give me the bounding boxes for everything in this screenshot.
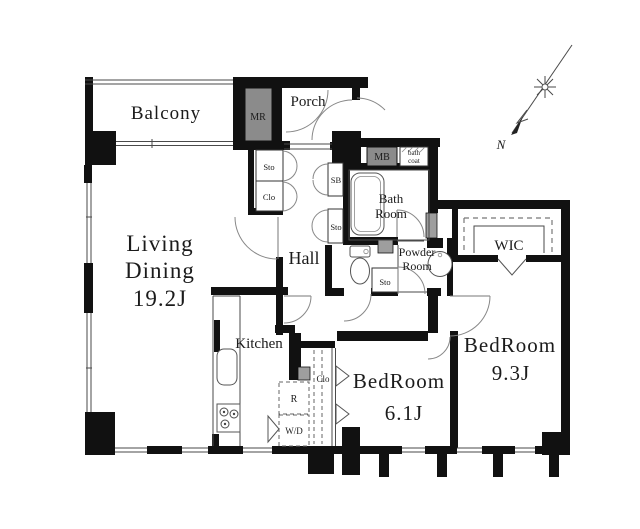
window — [86, 313, 92, 412]
wall-pillar — [493, 454, 503, 477]
wall — [147, 446, 182, 454]
wall — [450, 331, 458, 448]
wall — [233, 141, 290, 150]
entrance-door-arc — [357, 98, 385, 110]
door-arc — [450, 296, 490, 336]
wall-pillar — [379, 454, 389, 477]
balcony-railing — [85, 80, 233, 84]
label-washer-dryer: W/D — [285, 426, 303, 436]
room-label-powder-1: Powder — [399, 245, 436, 259]
kitchen-sink-icon — [217, 349, 237, 385]
toilet-icon — [350, 246, 370, 284]
window — [115, 448, 147, 452]
wall — [233, 77, 368, 88]
room-label-wic: WIC — [494, 238, 523, 254]
wall — [208, 446, 243, 454]
wall-pillar — [437, 454, 447, 477]
wall-pillar — [308, 454, 334, 474]
wall — [430, 200, 570, 209]
floorplan-image: Balcony MR Porch Sto Clo SB Sto MB bath … — [0, 0, 640, 529]
window — [86, 183, 92, 263]
room-label-hall: Hall — [289, 248, 320, 268]
wall — [535, 446, 542, 454]
wall-pillar — [342, 427, 360, 475]
room-size-bedroom-small: 6.1J — [385, 401, 423, 425]
room-label-powder-2: Room — [402, 259, 432, 273]
room-size-living: 19.2J — [133, 286, 187, 311]
compass-north-label: N — [496, 137, 507, 152]
bifold-door-arc — [283, 182, 297, 211]
wall — [561, 200, 570, 455]
wall — [428, 291, 438, 333]
wall — [427, 288, 441, 296]
label-clo-bedroom: Clo — [316, 374, 330, 384]
wall — [325, 288, 344, 296]
wall-pillar — [542, 432, 570, 455]
window — [116, 139, 233, 148]
floorplan-svg: Balcony MR Porch Sto Clo SB Sto MB bath … — [0, 0, 640, 529]
label-meter-box: MB — [374, 152, 390, 163]
folding-door-icon — [268, 416, 279, 442]
wall — [85, 412, 115, 455]
window — [515, 448, 535, 452]
compass-star-center — [542, 84, 548, 90]
label-refrigerator: R — [291, 394, 298, 405]
wall — [272, 446, 342, 454]
wall — [233, 77, 245, 150]
room-label-living-1: Living — [126, 231, 193, 256]
wall — [276, 257, 283, 335]
wall — [245, 287, 288, 295]
door-arc — [284, 296, 311, 323]
label-bath-coat-2: coat — [408, 157, 420, 165]
stove-icon — [217, 404, 240, 432]
room-label-bedroom-small: BedRoom — [353, 369, 445, 393]
door-arc — [235, 217, 277, 259]
label-clo-entry: Clo — [263, 192, 275, 202]
door-arc — [428, 337, 450, 359]
wall-pillar — [549, 454, 559, 477]
entry-step-line — [284, 144, 332, 149]
wall — [275, 325, 295, 333]
window — [457, 448, 482, 452]
window — [402, 448, 425, 452]
wall — [355, 138, 440, 147]
wall — [248, 148, 254, 213]
wall — [337, 331, 428, 341]
wall — [214, 320, 220, 352]
wall — [84, 263, 93, 313]
wall — [452, 209, 458, 262]
wall — [84, 165, 92, 183]
label-shoe-box: SB — [331, 175, 342, 185]
room-label-living-2: Dining — [125, 258, 195, 283]
wall — [211, 287, 245, 295]
wall — [360, 446, 402, 454]
label-bath-coat-1: bath — [408, 149, 421, 157]
pipe-shaft — [298, 367, 310, 380]
window — [182, 448, 208, 452]
window — [243, 448, 272, 452]
label-sto-hall: Sto — [330, 222, 341, 232]
room-label-kitchen: Kitchen — [235, 336, 283, 352]
bifold-door-arc — [312, 210, 328, 242]
wall — [482, 446, 515, 454]
room-size-bedroom-large: 9.3J — [492, 361, 530, 385]
wall — [272, 77, 282, 150]
room-label-meter-room: MR — [250, 112, 266, 123]
wic-folding-door — [498, 259, 526, 275]
label-sto-entry: Sto — [263, 162, 274, 172]
pipe-shaft — [426, 213, 437, 238]
compass-icon — [511, 45, 572, 135]
bifold-door-arc — [313, 164, 328, 195]
pipe-shaft — [378, 240, 393, 253]
folding-door-icon — [336, 404, 349, 424]
door-arc — [344, 294, 371, 321]
room-label-bath-1: Bath — [379, 191, 404, 206]
wall — [85, 131, 116, 165]
room-label-bedroom-large: BedRoom — [464, 333, 556, 357]
bedroom-closet-wall — [332, 348, 336, 446]
label-sto-toilet: Sto — [379, 277, 390, 287]
closet-dashed-line — [314, 350, 322, 444]
room-label-bath-2: Room — [375, 206, 407, 221]
room-label-balcony: Balcony — [131, 103, 201, 124]
room-label-porch: Porch — [291, 94, 326, 110]
wall — [526, 255, 561, 262]
wall — [295, 341, 335, 348]
bifold-door-arc — [283, 151, 297, 181]
folding-door-icon — [336, 366, 349, 386]
